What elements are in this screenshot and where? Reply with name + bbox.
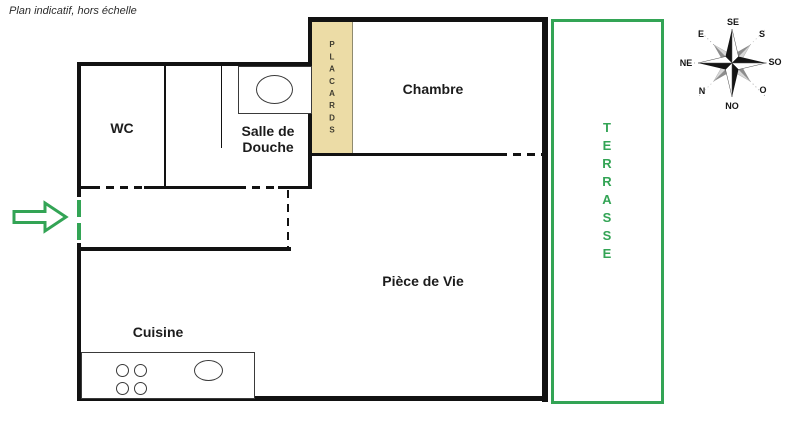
wall-right xyxy=(542,17,548,402)
wc-door-dashed xyxy=(92,186,144,189)
stove-burner-icon xyxy=(116,364,129,377)
room-label-closets: PLACARDS xyxy=(328,40,337,138)
entrance-arrow-icon xyxy=(11,200,69,234)
compass-label-o: O xyxy=(759,85,766,95)
room-label-shower: Salle de Douche xyxy=(226,123,310,155)
room-label-living: Pièce de Vie xyxy=(382,273,463,289)
room-label-bedroom: Chambre xyxy=(403,81,464,97)
compass-label-so: SO xyxy=(768,57,781,67)
compass-label-e: E xyxy=(698,29,704,39)
wall-wc-partition xyxy=(164,64,166,188)
room-label-wc: WC xyxy=(110,120,133,136)
wall-shower-divider xyxy=(221,66,222,148)
compass-rose-icon xyxy=(682,13,782,113)
compass-label-s: S xyxy=(759,29,765,39)
room-label-kitchen: Cuisine xyxy=(133,324,184,340)
compass-label-ne: NE xyxy=(680,58,693,68)
room-label-terrace: TERRASSE xyxy=(600,120,615,264)
wall-wet-bottom-3 xyxy=(278,186,312,189)
bedroom-door-dashed xyxy=(499,153,542,156)
plan-caption: Plan indicatif, hors échelle xyxy=(9,5,137,17)
washbasin-bowl-icon xyxy=(256,75,293,104)
wall-wet-bottom-1 xyxy=(79,186,92,189)
kitchen-counter xyxy=(81,352,255,399)
entrance-door-dashed xyxy=(77,200,81,242)
stove-burner-icon xyxy=(116,382,129,395)
wall-bedroom-bottom xyxy=(310,153,499,156)
compass-label-se: SE xyxy=(727,17,739,27)
stove-burner-icon xyxy=(134,364,147,377)
stove-burner-icon xyxy=(134,382,147,395)
compass-label-no: NO xyxy=(725,101,739,111)
wall-left-upper xyxy=(77,62,81,197)
shower-door-dashed xyxy=(238,186,278,189)
hall-divider-dashed xyxy=(287,190,289,247)
kitchen-sink-icon xyxy=(194,360,223,381)
wall-bedroom-top xyxy=(310,17,548,22)
wall-wet-bottom-2 xyxy=(144,186,238,189)
floor-plan: Plan indicatif, hors échelle WC Salle de… xyxy=(0,0,800,441)
compass-label-n: N xyxy=(699,86,706,96)
wall-hall-bottom xyxy=(79,247,291,251)
